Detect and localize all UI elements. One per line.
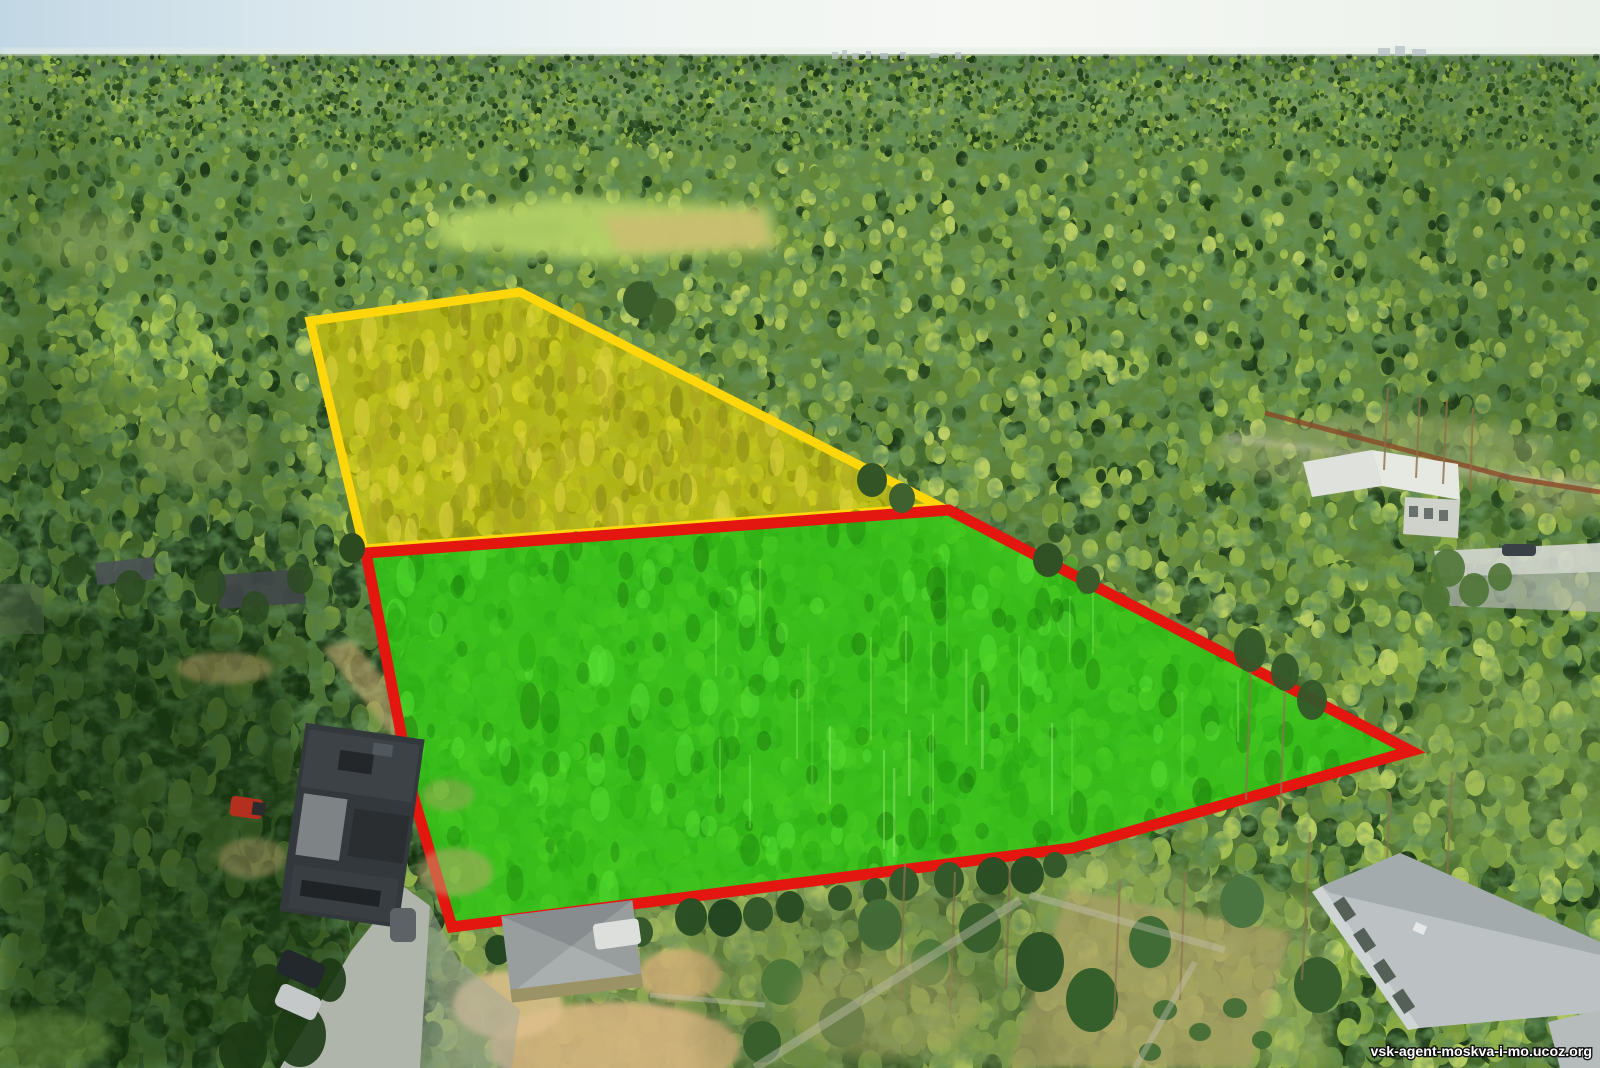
svg-text:vsk-agent-moskva-i-mo.ucoz.org: vsk-agent-moskva-i-mo.ucoz.org xyxy=(1370,1044,1592,1060)
